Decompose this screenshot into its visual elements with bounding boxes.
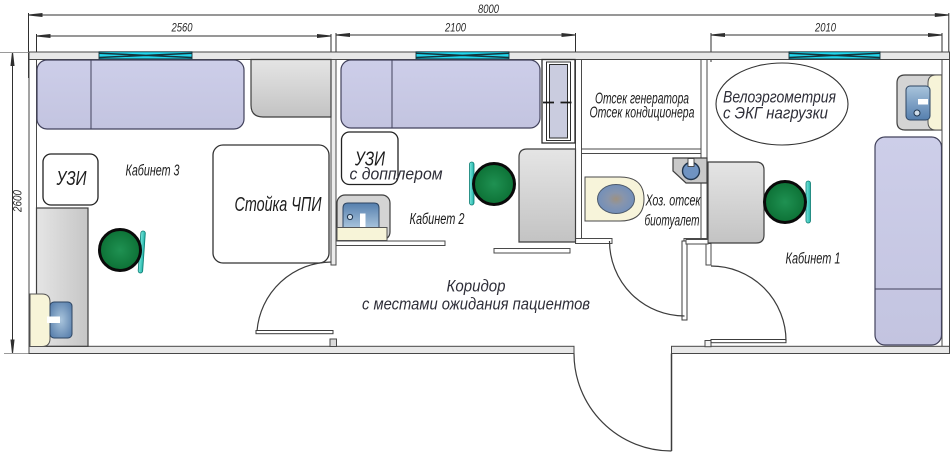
svg-text:Кабинет 2: Кабинет 2 — [410, 211, 465, 228]
svg-text:2600: 2600 — [11, 190, 25, 213]
svg-text:биотуалет: биотуалет — [645, 213, 700, 230]
svg-text:Отсек кондиционера: Отсек кондиционера — [590, 104, 695, 121]
svg-text:Хоз. отсек: Хоз. отсек — [645, 193, 701, 210]
svg-text:УЗИ: УЗИ — [56, 168, 87, 190]
svg-text:2010: 2010 — [814, 21, 836, 35]
svg-text:Кабинет 1: Кабинет 1 — [786, 251, 841, 268]
svg-text:Кабинет 3: Кабинет 3 — [126, 163, 180, 180]
svg-text:с местами ожидания пациентов: с местами ожидания пациентов — [362, 296, 590, 314]
svg-text:с допплером: с допплером — [350, 166, 443, 184]
svg-text:с ЭКГ нагрузки: с ЭКГ нагрузки — [723, 105, 828, 123]
svg-text:2560: 2560 — [171, 21, 193, 35]
svg-text:8000: 8000 — [478, 2, 499, 16]
svg-text:Коридор: Коридор — [447, 278, 506, 296]
svg-text:Стойка ЧПИ: Стойка ЧПИ — [235, 194, 322, 216]
svg-text:2100: 2100 — [444, 21, 466, 35]
svg-text:Велоэргометрия: Велоэргометрия — [723, 88, 836, 106]
